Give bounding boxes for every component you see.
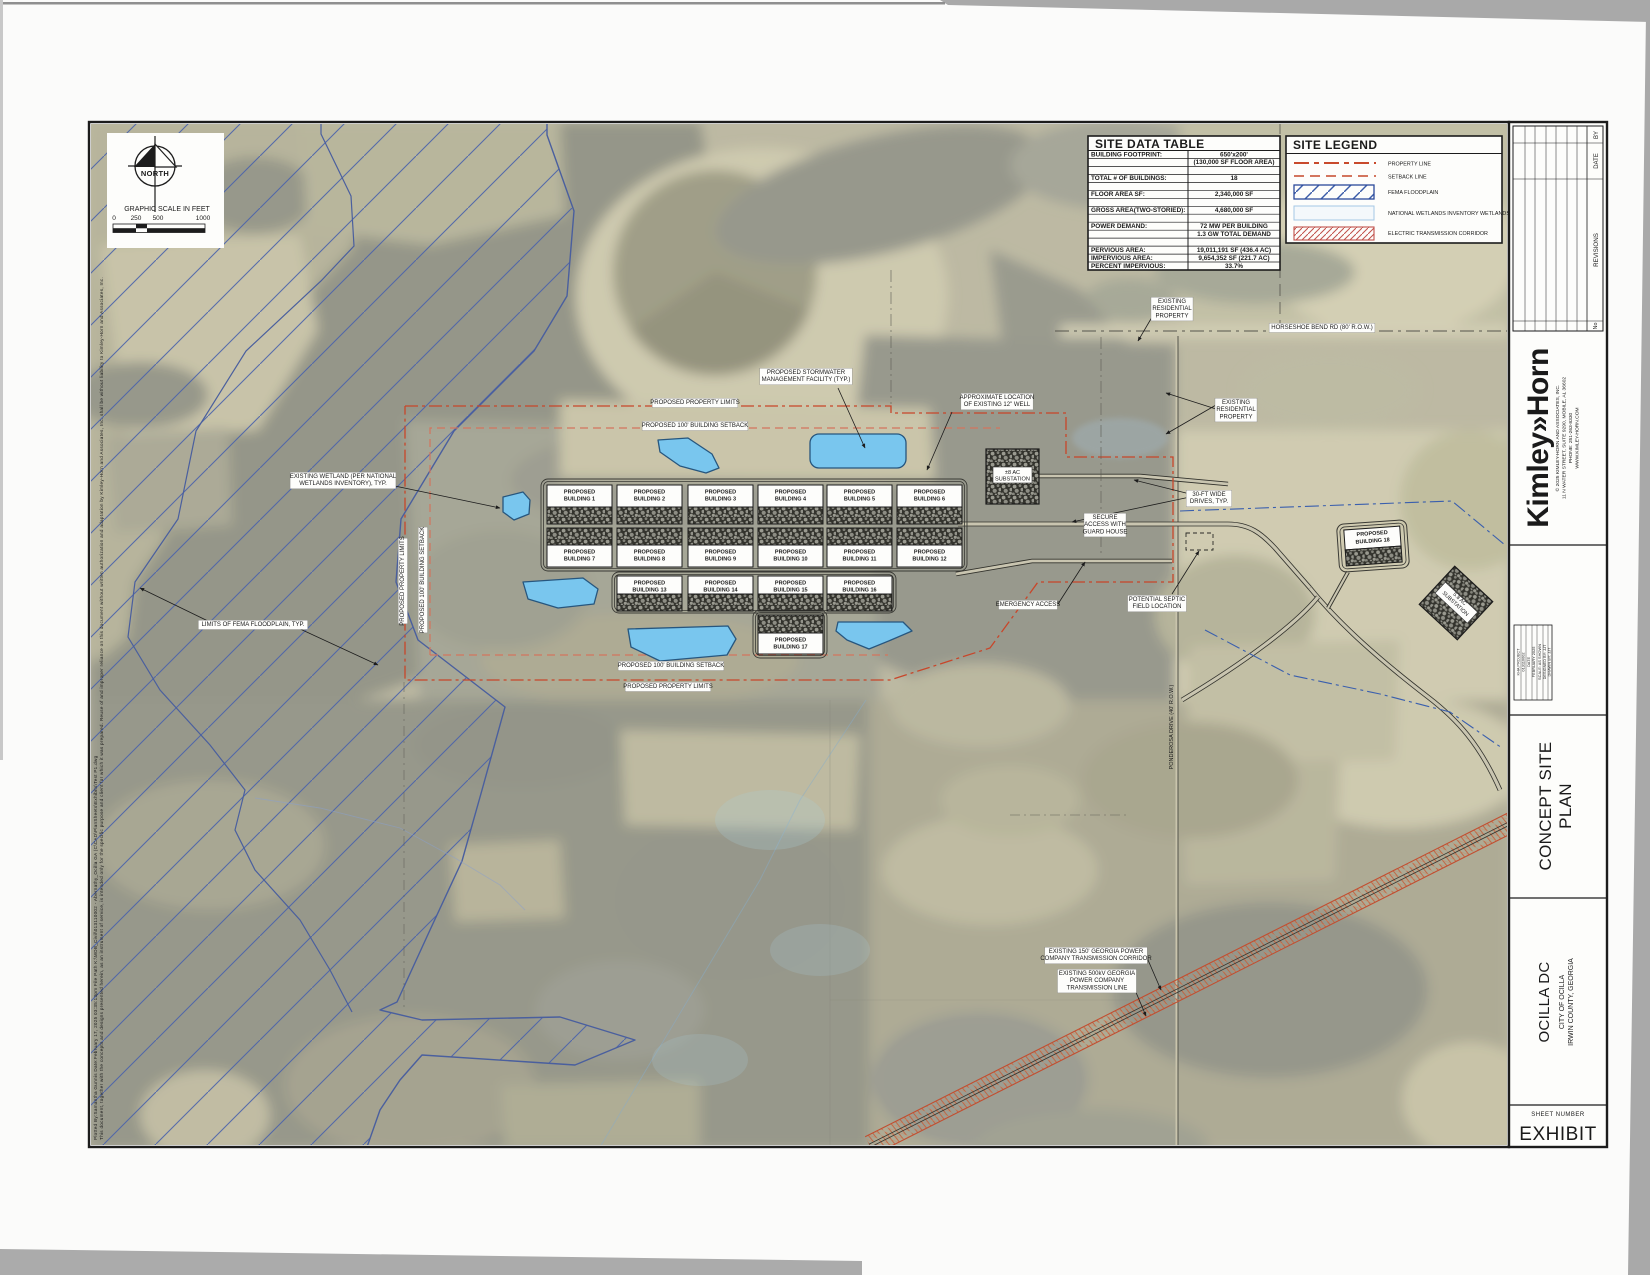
svg-text:LIMITS OF FEMA FLOODPLAIN, TYP: LIMITS OF FEMA FLOODPLAIN, TYP. [202, 622, 305, 628]
svg-text:EXISTING 150' GEORGIA POWER: EXISTING 150' GEORGIA POWER [1049, 949, 1144, 955]
svg-text:PROPOSED: PROPOSED [844, 581, 875, 587]
svg-text:RESIDENTIAL: RESIDENTIAL [1216, 407, 1256, 413]
svg-text:BUILDING 16: BUILDING 16 [842, 588, 876, 594]
svg-text:4,680,000 SF: 4,680,000 SF [1215, 207, 1253, 214]
svg-text:250: 250 [131, 215, 142, 222]
svg-text:BUILDING 10: BUILDING 10 [773, 557, 807, 563]
svg-text:BUILDING 9: BUILDING 9 [705, 557, 736, 563]
svg-text:BUILDING 17: BUILDING 17 [773, 645, 807, 651]
svg-text:BUILDING 4: BUILDING 4 [775, 497, 807, 503]
svg-text:FEBRUARY 2025: FEBRUARY 2025 [1531, 647, 1536, 678]
svg-text:72 MW PER BUILDING: 72 MW PER BUILDING [1200, 223, 1268, 230]
svg-text:BUILDING 7: BUILDING 7 [564, 557, 595, 563]
svg-text:TOTAL # OF BUILDINGS:: TOTAL # OF BUILDINGS: [1091, 175, 1167, 182]
svg-text:PROPOSED PROPERTY LIMITS: PROPOSED PROPERTY LIMITS [650, 400, 739, 406]
svg-text:2,340,000 SF: 2,340,000 SF [1215, 191, 1253, 198]
svg-text:APPROXIMATE LOCATION: APPROXIMATE LOCATION [960, 395, 1035, 401]
svg-text:9,654,352 SF (221.7 AC): 9,654,352 SF (221.7 AC) [1198, 255, 1269, 262]
svg-text:EMERGENCY ACCESS: EMERGENCY ACCESS [996, 602, 1061, 608]
svg-text:NORTH: NORTH [141, 169, 169, 178]
svg-text:COMPANY TRANSMISSION CORRIDOR: COMPANY TRANSMISSION CORRIDOR [1040, 956, 1152, 962]
svg-text:BUILDING 15: BUILDING 15 [773, 588, 807, 594]
svg-text:PROPOSED: PROPOSED [775, 550, 806, 556]
svg-text:0: 0 [112, 215, 116, 222]
svg-text:Kimley»Horn: Kimley»Horn [1522, 348, 1555, 528]
svg-text:PROPOSED: PROPOSED [564, 550, 595, 556]
svg-text:CONCEPT SITE: CONCEPT SITE [1536, 742, 1555, 871]
svg-text:BUILDING 3: BUILDING 3 [705, 497, 736, 503]
svg-text:650'x200': 650'x200' [1220, 151, 1248, 158]
svg-text:PROPERTY: PROPERTY [1220, 414, 1253, 420]
svg-text:SITE DATA TABLE: SITE DATA TABLE [1095, 137, 1205, 151]
svg-text:PROPERTY LINE: PROPERTY LINE [1388, 162, 1431, 168]
svg-text:013110002: 013110002 [1521, 652, 1526, 671]
svg-text:POWER DEMAND:: POWER DEMAND: [1091, 223, 1147, 230]
svg-text:This document, together with t: This document, together with the concept… [99, 277, 104, 1140]
svg-text:18: 18 [1230, 175, 1238, 182]
svg-text:BUILDING 1: BUILDING 1 [564, 497, 595, 503]
svg-text:MANAGEMENT FACILITY (TYP.): MANAGEMENT FACILITY (TYP.) [762, 377, 851, 383]
svg-text:PROPOSED: PROPOSED [775, 581, 806, 587]
svg-text:PROPERTY: PROPERTY [1156, 313, 1189, 319]
svg-text:GROSS AREA(TWO-STORIED):: GROSS AREA(TWO-STORIED): [1091, 207, 1185, 214]
svg-text:POTENTIAL SEPTIC: POTENTIAL SEPTIC [1129, 597, 1186, 603]
svg-text:Plotted By:Samantha Gunnis: Plotted By:Samantha Gunnis Date:February… [93, 755, 98, 1140]
svg-text:1000: 1000 [196, 215, 211, 222]
svg-text:FIELD LOCATION: FIELD LOCATION [1133, 604, 1182, 610]
svg-text:1.3 GW TOTAL DEMAND: 1.3 GW TOTAL DEMAND [1197, 231, 1271, 238]
svg-text:PERVIOUS AREA:: PERVIOUS AREA: [1091, 247, 1146, 254]
svg-text:BUILDING 11: BUILDING 11 [843, 557, 877, 563]
svg-text:EXISTING: EXISTING [1158, 299, 1186, 305]
svg-text:SHEET NUMBER: SHEET NUMBER [1531, 1112, 1585, 1118]
svg-text:PROPOSED: PROPOSED [634, 550, 665, 556]
svg-text:BUILDING 8: BUILDING 8 [634, 557, 665, 563]
svg-text:PROPOSED 100' BUILDING SETBACK: PROPOSED 100' BUILDING SETBACK [618, 663, 725, 669]
svg-text:PROPOSED: PROPOSED [775, 638, 806, 644]
svg-text:PERCENT IMPERVIOUS:: PERCENT IMPERVIOUS: [1091, 263, 1165, 270]
svg-text:BUILDING 5: BUILDING 5 [844, 497, 875, 503]
svg-text:EXISTING WETLAND (PER NATIONAL: EXISTING WETLAND (PER NATIONAL [290, 474, 397, 480]
svg-text:DRAWN BY: JJT: DRAWN BY: JJT [1547, 647, 1552, 677]
svg-text:PROPOSED: PROPOSED [914, 490, 945, 496]
svg-text:DATE: DATE [1594, 153, 1600, 169]
svg-text:EXHIBIT: EXHIBIT [1519, 1124, 1596, 1145]
svg-text:HORSESHOE BEND RD (80' R.O.W.): HORSESHOE BEND RD (80' R.O.W.) [1271, 325, 1373, 331]
svg-text:POWER COMPANY: POWER COMPANY [1070, 978, 1124, 984]
svg-text:PROPOSED STORMWATER: PROPOSED STORMWATER [767, 370, 846, 376]
svg-text:BUILDING 13: BUILDING 13 [632, 588, 666, 594]
svg-text:OF EXISTING 12" WELL: OF EXISTING 12" WELL [964, 402, 1031, 408]
svg-text:PHONE: 251-263-8330: PHONE: 251-263-8330 [1568, 412, 1574, 463]
svg-text:PROPOSED: PROPOSED [844, 550, 875, 556]
svg-text:BUILDING 14: BUILDING 14 [703, 588, 738, 594]
svg-text:WWW.KIMLEY-HORN.COM: WWW.KIMLEY-HORN.COM [1575, 407, 1581, 468]
svg-text:500: 500 [153, 215, 164, 222]
svg-text:OCILLA DC: OCILLA DC [1536, 961, 1553, 1042]
svg-text:TRANSMISSION LINE: TRANSMISSION LINE [1067, 985, 1128, 991]
svg-text:PROPOSED 100' BUILDING SETBACK: PROPOSED 100' BUILDING SETBACK [642, 423, 749, 429]
svg-text:SUBSTATION: SUBSTATION [995, 477, 1030, 483]
svg-text:ELECTRIC TRANSMISSION CORRIDOR: ELECTRIC TRANSMISSION CORRIDOR [1388, 231, 1488, 237]
svg-text:PROPOSED: PROPOSED [844, 490, 875, 496]
svg-text:EXISTING 500kV GEORGIA: EXISTING 500kV GEORGIA [1059, 971, 1135, 977]
svg-text:PROPOSED PROPERTY LIMITS: PROPOSED PROPERTY LIMITS [400, 536, 406, 625]
svg-text:PROPOSED: PROPOSED [705, 550, 736, 556]
svg-text:PROPOSED: PROPOSED [705, 490, 736, 496]
svg-text:REVISIONS: REVISIONS [1593, 233, 1600, 267]
svg-text:BUILDING 12: BUILDING 12 [912, 557, 946, 563]
svg-text:SITE LEGEND: SITE LEGEND [1293, 138, 1377, 152]
svg-text:GUARD HOUSE: GUARD HOUSE [1083, 529, 1128, 535]
svg-text:No: No [1593, 323, 1599, 330]
svg-text:PROPOSED: PROPOSED [775, 490, 806, 496]
svg-text:PLAN: PLAN [1556, 783, 1575, 829]
svg-text:BUILDING FOOTPRINT:: BUILDING FOOTPRINT: [1091, 151, 1162, 158]
svg-text:30-FT WIDE: 30-FT WIDE [1192, 492, 1225, 498]
svg-text:EXISTING: EXISTING [1222, 400, 1250, 406]
svg-text:FEMA FLOODPLAIN: FEMA FLOODPLAIN [1388, 190, 1438, 196]
svg-text:RESIDENTIAL: RESIDENTIAL [1152, 306, 1192, 312]
svg-text:SETBACK LINE: SETBACK LINE [1388, 175, 1427, 181]
svg-text:PROPOSED: PROPOSED [564, 490, 595, 496]
svg-text:IMPERVIOUS AREA:: IMPERVIOUS AREA: [1091, 255, 1153, 262]
svg-text:19,011,191 SF (436.4 AC): 19,011,191 SF (436.4 AC) [1197, 247, 1271, 254]
svg-text:BUILDING 2: BUILDING 2 [634, 497, 665, 503]
svg-text:33.7%: 33.7% [1225, 263, 1243, 270]
svg-text:±8 AC: ±8 AC [1005, 470, 1020, 476]
svg-text:PROPOSED PROPERTY LIMITS: PROPOSED PROPERTY LIMITS [623, 684, 712, 690]
svg-text:NATIONAL WETLANDS INVENTORY WE: NATIONAL WETLANDS INVENTORY WETLANDS [1388, 211, 1510, 217]
svg-text:11 N WATER STREET, SUITE 9290,: 11 N WATER STREET, SUITE 9290, MOBILE, A… [1562, 377, 1568, 500]
svg-text:PROPOSED: PROPOSED [705, 581, 736, 587]
svg-text:ACCESS WITH: ACCESS WITH [1084, 522, 1126, 528]
svg-text:BUILDING 6: BUILDING 6 [914, 497, 945, 503]
svg-text:CITY OF OCILLA: CITY OF OCILLA [1559, 975, 1566, 1030]
svg-text:PROPOSED 100' BUILDING SETBACK: PROPOSED 100' BUILDING SETBACK [420, 527, 426, 634]
svg-text:SECURE: SECURE [1092, 515, 1117, 521]
svg-text:BY: BY [1594, 131, 1600, 139]
svg-text:DRIVES, TYP.: DRIVES, TYP. [1190, 499, 1228, 505]
svg-text:IRWIN COUNTY, GEORGIA: IRWIN COUNTY, GEORGIA [1568, 958, 1575, 1046]
svg-text:PROPOSED: PROPOSED [634, 581, 665, 587]
svg-text:PROPOSED: PROPOSED [634, 490, 665, 496]
svg-text:WETLANDS INVENTORY), TYP.: WETLANDS INVENTORY), TYP. [299, 481, 387, 487]
svg-text:PROPOSED: PROPOSED [914, 550, 945, 556]
svg-text:PONDEROSA DRIVE (40' R.O.W.): PONDEROSA DRIVE (40' R.O.W.) [1169, 684, 1175, 769]
svg-text:GRAPHIC SCALE IN FEET: GRAPHIC SCALE IN FEET [124, 206, 210, 213]
svg-text:© 2025 KIMLEY-HORN AND ASSOCIA: © 2025 KIMLEY-HORN AND ASSOCIATES, INC. [1554, 385, 1561, 492]
svg-text:FLOOR AREA SF:: FLOOR AREA SF: [1091, 191, 1145, 198]
svg-text:(130,000 SF FLOOR AREA): (130,000 SF FLOOR AREA) [1193, 159, 1274, 166]
